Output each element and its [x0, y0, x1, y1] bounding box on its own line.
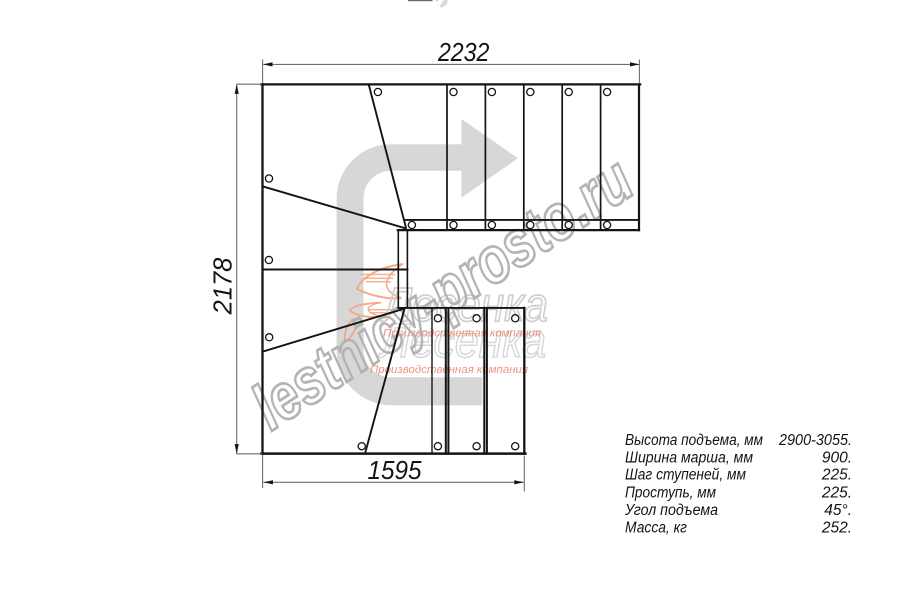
svg-text:Ширина марша, мм: Ширина марша, мм — [625, 449, 753, 466]
svg-text:1595: 1595 — [368, 457, 423, 485]
svg-text:225.: 225. — [821, 485, 852, 502]
svg-text:Проступь, мм: Проступь, мм — [625, 485, 716, 502]
svg-text:225.: 225. — [821, 466, 852, 483]
svg-text:2178: 2178 — [210, 257, 238, 316]
svg-text:900.: 900. — [822, 449, 852, 466]
svg-text:Шаг ступеней, мм: Шаг ступеней, мм — [625, 466, 746, 483]
svg-text:45°.: 45°. — [824, 502, 852, 519]
svg-text:Масса, кг: Масса, кг — [625, 519, 687, 536]
svg-text:2232: 2232 — [437, 39, 489, 67]
svg-text:2900-3055.: 2900-3055. — [778, 432, 852, 449]
svg-text:Высота подъема, мм: Высота подъема, мм — [625, 432, 763, 449]
svg-text:252.: 252. — [821, 519, 852, 536]
svg-text:Угол подъема: Угол подъема — [624, 502, 718, 519]
